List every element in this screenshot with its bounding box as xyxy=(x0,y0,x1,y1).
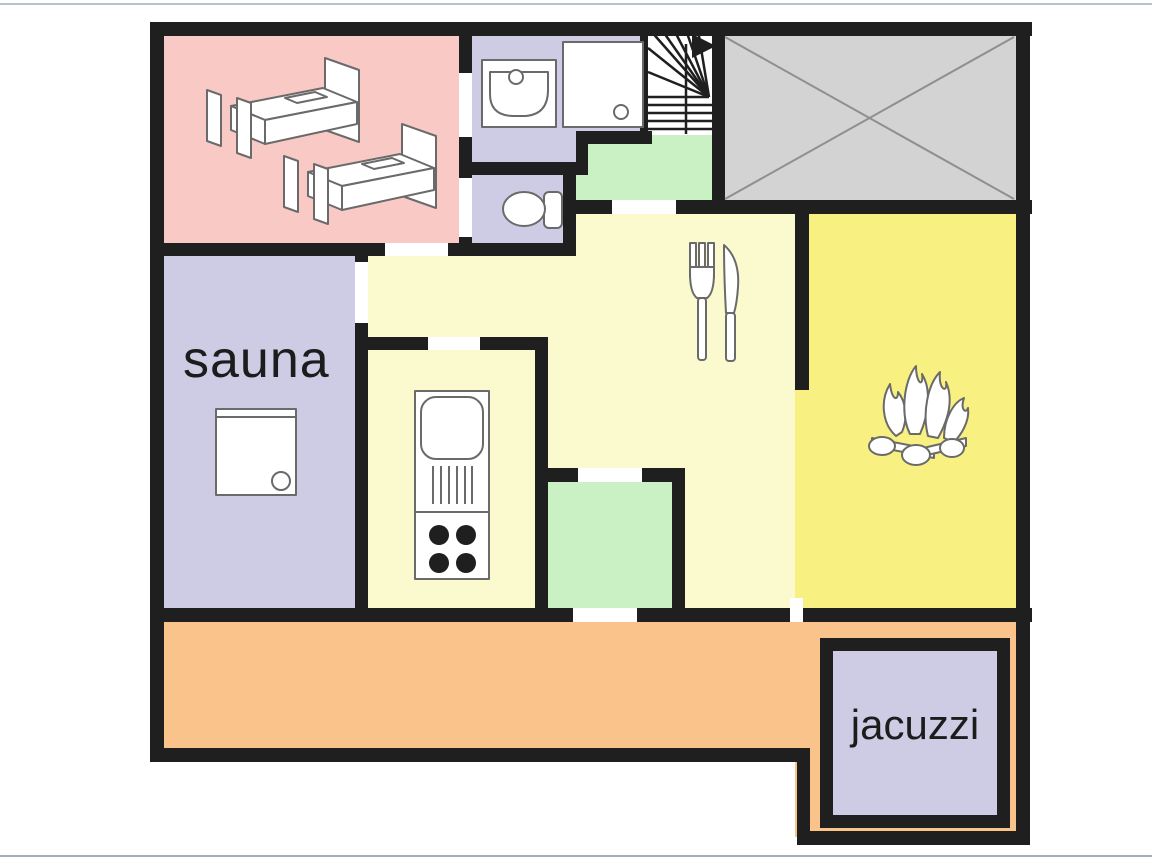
door-living-terrace xyxy=(790,598,803,622)
wall-outer-top xyxy=(150,22,1032,36)
sauna-label: sauna xyxy=(183,334,330,386)
door-bedroom-wc xyxy=(459,178,472,237)
floor-plan: sauna jacuzzi xyxy=(0,0,1152,864)
wall-outer-left xyxy=(150,22,164,762)
door-bedroom-hall xyxy=(385,243,448,256)
wall-terrace-bottom-right xyxy=(797,831,1030,845)
terrace-left xyxy=(150,615,810,755)
door-bedroom-bathroom xyxy=(459,73,472,137)
room-living xyxy=(795,206,1016,608)
door-landing-hall xyxy=(612,200,676,214)
jacuzzi-label: jacuzzi xyxy=(833,704,997,746)
door-hall-kitchen xyxy=(428,337,480,350)
frame-bottom-line xyxy=(0,855,1152,857)
frame-top-line xyxy=(0,3,1152,5)
wall-entry-right xyxy=(672,468,685,610)
wall-stairs-void xyxy=(712,22,725,214)
room-void xyxy=(718,30,1018,208)
room-sauna xyxy=(160,243,358,610)
wall-outer-right xyxy=(1016,22,1030,845)
wall-terrace-bottom-left xyxy=(150,748,810,762)
room-staircase xyxy=(645,30,712,135)
wall-stairs-left xyxy=(640,36,648,135)
wall-living-left xyxy=(795,206,809,390)
door-hall-entry xyxy=(578,468,642,482)
wall-landing-left-stub xyxy=(576,131,588,175)
room-entry xyxy=(542,475,678,610)
wall-wc-right xyxy=(563,162,576,256)
door-sauna-hall xyxy=(355,262,368,323)
door-entry-terrace xyxy=(573,608,637,622)
room-bedroom xyxy=(160,30,465,250)
